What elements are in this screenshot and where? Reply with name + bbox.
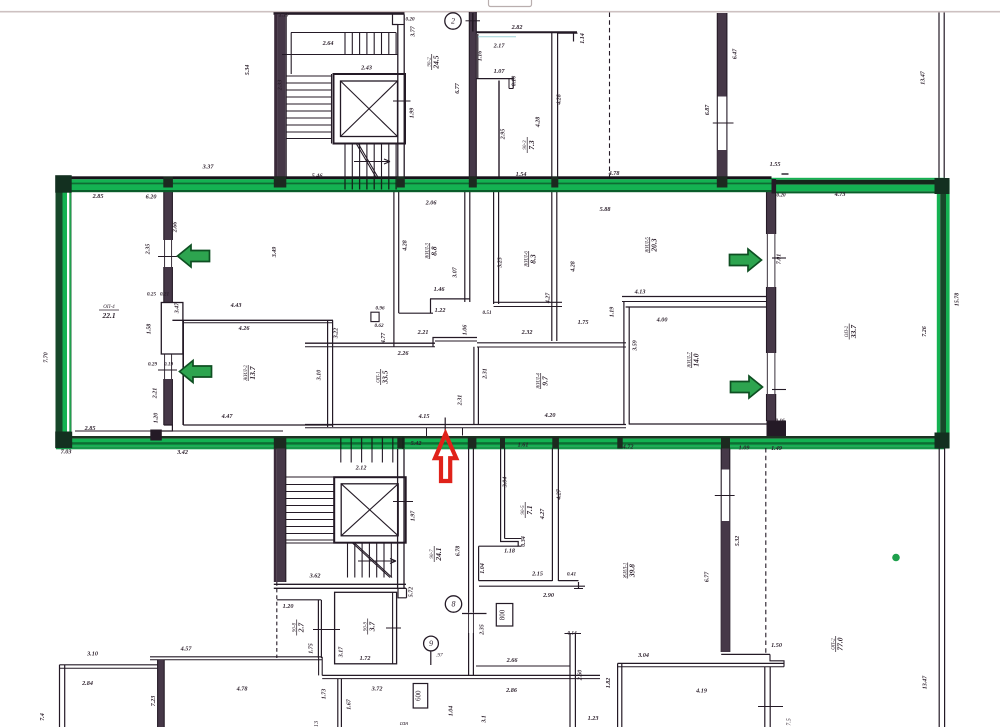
svg-text:0.51: 0.51	[482, 310, 491, 316]
svg-text:1.16: 1.16	[478, 51, 484, 62]
svg-text:1.61: 1.61	[518, 442, 529, 449]
svg-text:7.5: 7.5	[787, 718, 793, 726]
svg-text:2.31: 2.31	[458, 395, 464, 407]
svg-text:1.06: 1.06	[463, 325, 469, 336]
svg-text:33.5: 33.5	[381, 370, 390, 384]
svg-text:6.78: 6.78	[456, 546, 462, 557]
svg-text:0.21: 0.21	[160, 291, 169, 297]
svg-text:2.12: 2.12	[355, 465, 367, 472]
svg-text:8.8: 8.8	[430, 246, 439, 256]
svg-text:2.64: 2.64	[322, 40, 334, 47]
svg-text:2.35: 2.35	[146, 244, 152, 256]
svg-text:4.43: 4.43	[230, 302, 242, 309]
svg-text:1.58: 1.58	[147, 324, 153, 335]
svg-text:3.1: 3.1	[482, 715, 488, 724]
svg-text:5.88: 5.88	[600, 206, 611, 213]
svg-text:4.13: 4.13	[634, 289, 646, 296]
svg-text:6.87: 6.87	[705, 104, 711, 116]
svg-text:4.78: 4.78	[236, 686, 248, 693]
svg-text:2.17: 2.17	[493, 43, 506, 50]
svg-text:2.06: 2.06	[425, 200, 438, 207]
svg-text:2.90: 2.90	[542, 592, 554, 599]
svg-text:1.04: 1.04	[449, 706, 455, 717]
svg-text:5.46: 5.46	[312, 173, 324, 180]
svg-text:2.7: 2.7	[297, 623, 306, 634]
svg-text:4.19: 4.19	[695, 688, 707, 695]
svg-text:3.72: 3.72	[371, 686, 383, 693]
svg-text:2.15: 2.15	[531, 571, 543, 578]
svg-text:1.99: 1.99	[410, 108, 416, 119]
svg-text:7.1: 7.1	[525, 505, 534, 514]
svg-text:9: 9	[429, 639, 433, 648]
svg-text:3.37: 3.37	[202, 164, 215, 171]
svg-text:0.16: 0.16	[775, 418, 784, 424]
svg-text:0.96: 0.96	[375, 305, 384, 311]
svg-text:5.32: 5.32	[735, 536, 741, 547]
svg-text:1.72: 1.72	[360, 655, 371, 662]
svg-text:1.46: 1.46	[434, 286, 446, 293]
svg-text:4.73: 4.73	[834, 191, 846, 198]
svg-text:4.15: 4.15	[418, 413, 430, 420]
svg-text:3.62: 3.62	[309, 573, 321, 580]
svg-text:3.07: 3.07	[453, 266, 459, 279]
svg-text:0.25: 0.25	[147, 291, 156, 297]
svg-text:6.77: 6.77	[455, 82, 461, 94]
svg-text:6.77: 6.77	[705, 571, 711, 583]
svg-text:4.27: 4.27	[546, 292, 552, 305]
svg-text:13: 13	[313, 721, 320, 727]
svg-text:6.47: 6.47	[733, 48, 739, 60]
svg-text:2.82: 2.82	[511, 24, 523, 31]
svg-text:1.75: 1.75	[309, 643, 315, 654]
svg-text:5.34: 5.34	[245, 65, 251, 76]
svg-text:.97: .97	[436, 653, 443, 659]
svg-text:24.5: 24.5	[432, 55, 441, 69]
svg-text:4.20: 4.20	[544, 412, 556, 419]
svg-text:4.26: 4.26	[238, 325, 251, 332]
svg-text:7.26: 7.26	[922, 326, 928, 337]
svg-text:2.60: 2.60	[578, 670, 584, 682]
svg-text:сан: сан	[400, 721, 409, 727]
svg-text:4.47: 4.47	[221, 413, 234, 420]
svg-text:4.28: 4.28	[536, 117, 542, 129]
svg-text:1.19: 1.19	[610, 307, 616, 318]
svg-text:3.47: 3.47	[175, 302, 181, 315]
svg-text:8: 8	[452, 600, 456, 609]
svg-text:39.8: 39.8	[628, 564, 637, 578]
svg-text:7.01: 7.01	[777, 254, 783, 265]
svg-text:3.04: 3.04	[637, 652, 649, 659]
svg-text:77.0: 77.0	[836, 637, 845, 650]
svg-text:0.41: 0.41	[567, 571, 576, 577]
svg-text:24.1: 24.1	[434, 547, 443, 561]
svg-text:2.85: 2.85	[84, 425, 96, 432]
svg-text:2.66: 2.66	[506, 657, 519, 664]
svg-text:4.72: 4.72	[622, 444, 634, 451]
svg-text:3.59: 3.59	[633, 340, 639, 352]
svg-text:1.49: 1.49	[771, 445, 782, 452]
svg-text:1.97: 1.97	[411, 510, 417, 522]
svg-text:3.10: 3.10	[317, 370, 323, 382]
svg-text:1.04: 1.04	[480, 563, 486, 574]
svg-text:3.04: 3.04	[503, 477, 509, 489]
svg-text:7.03: 7.03	[61, 449, 72, 456]
svg-text:4.57: 4.57	[180, 646, 193, 653]
svg-text:2.85: 2.85	[92, 193, 104, 200]
svg-text:33.7: 33.7	[849, 325, 858, 339]
svg-text:3.77: 3.77	[411, 25, 417, 38]
svg-text:3.49: 3.49	[272, 247, 278, 259]
svg-text:0.29: 0.29	[148, 361, 157, 367]
svg-text:1.75: 1.75	[578, 319, 589, 326]
svg-text:4.27: 4.27	[540, 508, 546, 521]
svg-text:2.84: 2.84	[81, 680, 93, 687]
svg-text:1.82: 1.82	[606, 678, 612, 689]
svg-text:7.70: 7.70	[44, 352, 50, 363]
svg-text:1.20: 1.20	[283, 603, 294, 610]
svg-text:ОП-4: ОП-4	[103, 305, 115, 310]
svg-text:14.0: 14.0	[692, 353, 701, 366]
svg-text:2.33: 2.33	[278, 80, 284, 92]
svg-text:4.77: 4.77	[381, 332, 387, 345]
svg-text:600: 600	[415, 690, 423, 701]
svg-text:22.1: 22.1	[101, 311, 115, 320]
svg-text:2.35: 2.35	[480, 624, 486, 636]
svg-text:800: 800	[499, 609, 507, 620]
svg-text:4.00: 4.00	[656, 317, 668, 324]
svg-text:1.73: 1.73	[322, 689, 328, 700]
svg-text:0.19: 0.19	[164, 361, 173, 367]
svg-text:4.27: 4.27	[557, 488, 563, 501]
svg-text:8.3: 8.3	[529, 254, 538, 264]
svg-text:9.7: 9.7	[541, 376, 550, 386]
svg-text:2.95: 2.95	[501, 129, 507, 141]
svg-text:7.4: 7.4	[40, 713, 46, 721]
svg-text:1.67: 1.67	[347, 698, 353, 710]
svg-text:0.34: 0.34	[521, 536, 527, 547]
svg-text:20.3: 20.3	[650, 238, 659, 252]
svg-text:2.31: 2.31	[483, 368, 489, 380]
svg-text:1.54: 1.54	[516, 171, 527, 178]
svg-text:1.14: 1.14	[580, 33, 586, 44]
svg-text:1.18: 1.18	[504, 548, 515, 555]
svg-text:4.28: 4.28	[403, 240, 409, 252]
svg-text:2.21: 2.21	[417, 329, 429, 336]
svg-text:4.28: 4.28	[571, 261, 577, 273]
svg-text:1.09: 1.09	[739, 445, 750, 452]
svg-text:4.78: 4.78	[608, 170, 620, 177]
svg-text:7.3: 7.3	[527, 140, 536, 150]
svg-text:5.42: 5.42	[411, 440, 422, 447]
svg-text:3.10: 3.10	[86, 651, 98, 658]
svg-text:1.20: 1.20	[154, 413, 160, 424]
svg-text:0.20: 0.20	[776, 192, 785, 198]
svg-text:2.66: 2.66	[173, 222, 179, 234]
svg-text:5.72: 5.72	[409, 587, 415, 598]
svg-text:4.28: 4.28	[557, 94, 563, 106]
svg-text:13.47: 13.47	[923, 675, 929, 690]
svg-text:2.26: 2.26	[397, 350, 410, 357]
svg-text:7.23: 7.23	[151, 696, 157, 707]
svg-text:1.22: 1.22	[435, 307, 446, 314]
svg-text:0.10: 0.10	[512, 76, 518, 87]
svg-text:3.23: 3.23	[498, 257, 504, 269]
svg-text:15.78: 15.78	[955, 293, 961, 307]
svg-text:13.47: 13.47	[921, 70, 927, 85]
svg-text:2.43: 2.43	[360, 65, 372, 72]
svg-text:1.50: 1.50	[771, 642, 782, 649]
svg-text:0.62: 0.62	[374, 323, 383, 329]
svg-text:1.55: 1.55	[770, 161, 781, 168]
svg-text:2: 2	[451, 17, 455, 26]
svg-text:0.14: 0.14	[567, 630, 576, 636]
svg-text:13.7: 13.7	[248, 366, 257, 379]
svg-text:6.20: 6.20	[146, 194, 157, 201]
svg-text:0.20: 0.20	[405, 16, 414, 22]
svg-text:2.32: 2.32	[521, 329, 533, 336]
svg-text:3.17: 3.17	[339, 646, 345, 659]
svg-text:3.22: 3.22	[334, 328, 340, 340]
svg-text:2.86: 2.86	[505, 687, 518, 694]
svg-text:3.42: 3.42	[176, 449, 188, 456]
svg-text:1.17: 1.17	[279, 12, 291, 19]
svg-text:1.23: 1.23	[588, 715, 599, 722]
svg-text:1.07: 1.07	[494, 68, 506, 75]
svg-text:2.21: 2.21	[153, 388, 159, 400]
svg-text:3.7: 3.7	[368, 622, 377, 633]
